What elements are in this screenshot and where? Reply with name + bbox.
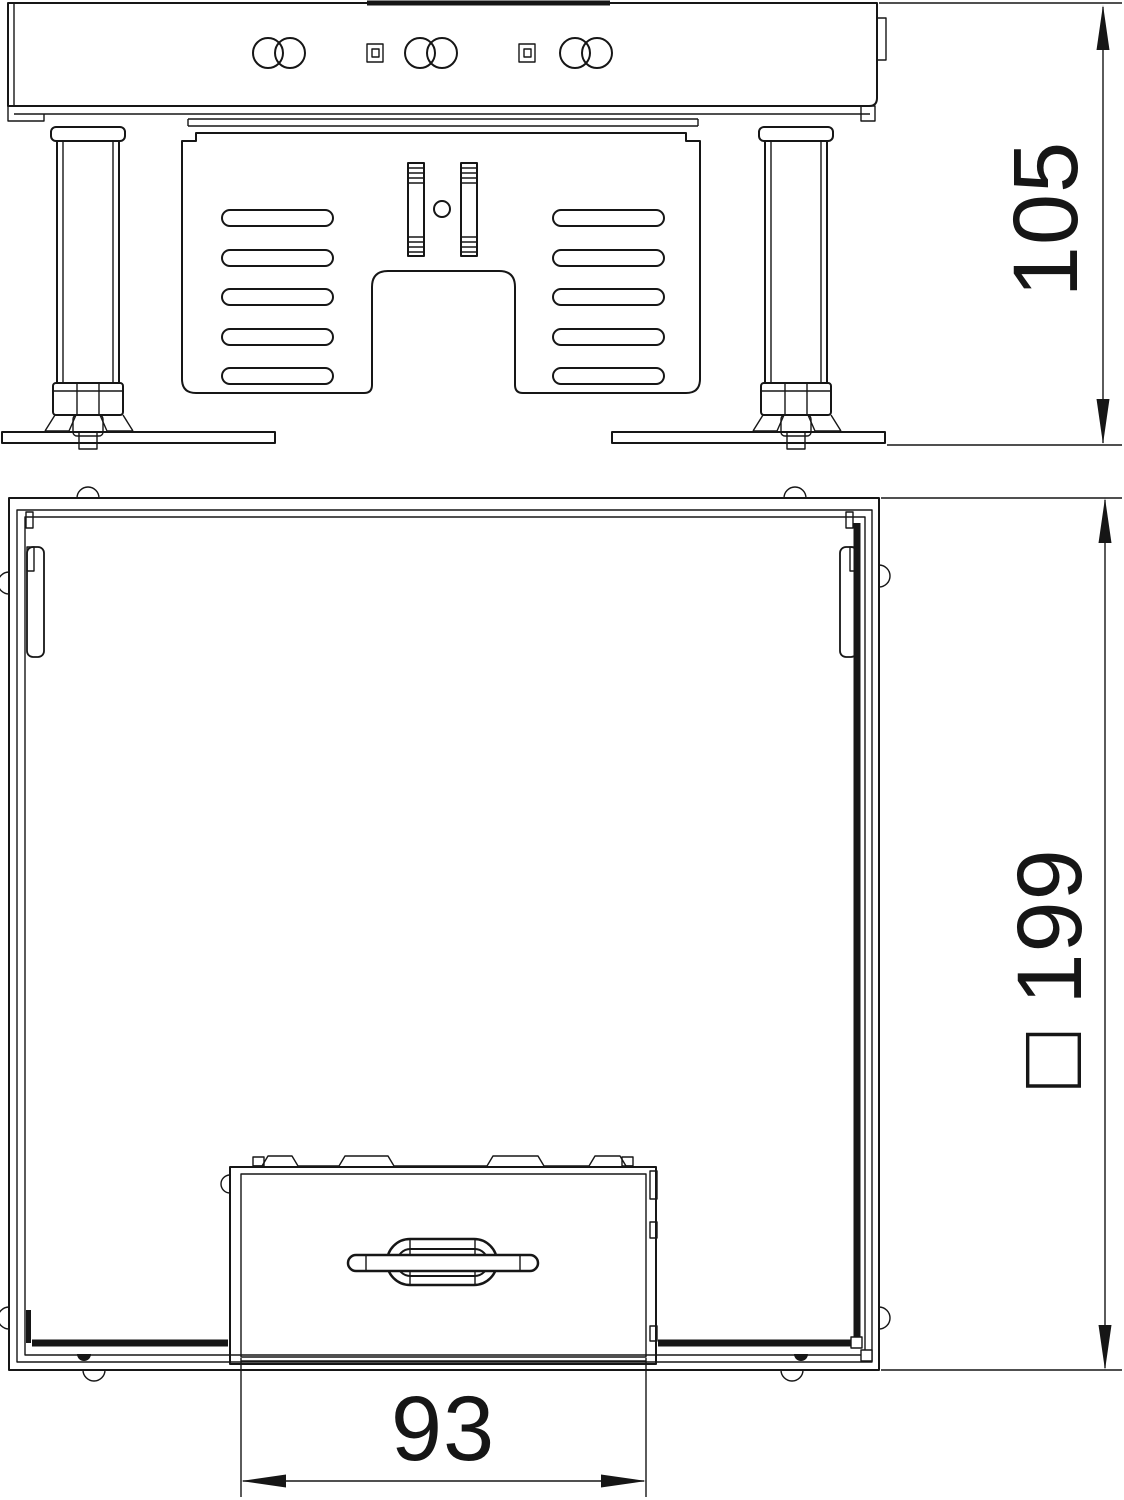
knockout-circle: [427, 38, 457, 68]
vent-slot: [222, 250, 333, 266]
bump-left-upper: [0, 572, 9, 594]
bump-right-upper: [879, 565, 890, 587]
leg-tube: [765, 141, 827, 383]
bump-right-lower: [879, 1307, 890, 1329]
arrow-left-icon: [241, 1475, 286, 1488]
bump-bottom-left: [83, 1370, 105, 1381]
leg-foot-plate: [2, 432, 275, 443]
slotted-support-plate: [182, 133, 700, 393]
dimension-199: □ 199: [881, 498, 1122, 1370]
vent-slot: [553, 250, 664, 266]
bump-top-left: [77, 487, 99, 498]
side-elevation-view: 105: [2, 3, 1122, 449]
leg-nut: [761, 383, 831, 415]
lid-corner-notch: [851, 1337, 862, 1348]
technical-drawing-canvas: 105: [0, 0, 1124, 1500]
ribbed-bar-hatch: [461, 168, 477, 252]
dimension-label-199: □ 199: [999, 848, 1101, 1088]
cassette-flange: [253, 1156, 633, 1166]
knockout-square: [519, 44, 535, 62]
vent-slot: [222, 368, 333, 384]
dimension-93: 93: [241, 1358, 646, 1497]
vent-slot: [553, 289, 664, 305]
knockout-square: [367, 44, 383, 62]
arrow-up-icon: [1099, 498, 1112, 543]
arrow-down-icon: [1099, 1325, 1112, 1370]
flange-lines: [188, 119, 698, 126]
knockout-circle: [275, 38, 305, 68]
knockout-circle: [582, 38, 612, 68]
knockout-square-inner: [372, 49, 379, 57]
bump-bottom-right: [781, 1370, 803, 1381]
adjustment-bracket: [408, 163, 477, 256]
vent-slots-right: [553, 210, 664, 384]
cover-plate-side: [8, 3, 886, 121]
frame-mid: [17, 510, 872, 1362]
arrow-up-icon: [1097, 5, 1110, 50]
knockout-squares: [367, 44, 535, 62]
leg-cap: [759, 127, 833, 141]
bump-left-lower: [0, 1307, 9, 1329]
cassette-unit: [221, 1156, 657, 1364]
frame-ledge: [25, 517, 865, 1355]
vent-slot: [222, 210, 333, 226]
vent-slot: [553, 368, 664, 384]
lid: [29, 523, 873, 1361]
leg-nut-facets: [53, 383, 123, 415]
cover-plate-right-tab: [877, 18, 886, 60]
vent-slots-left: [222, 210, 333, 384]
leg-stud: [787, 432, 805, 449]
corner-clip: [26, 512, 33, 528]
cassette-handle: [348, 1239, 538, 1285]
plan-view: □ 199 93: [0, 487, 1122, 1497]
vent-slot: [222, 329, 333, 345]
technical-drawing-page: 105: [0, 0, 1124, 1500]
leg-nut-facets: [761, 383, 831, 415]
handle-grip-bar: [348, 1255, 538, 1271]
screw-head-right: [794, 1354, 808, 1361]
leg-stud: [79, 432, 97, 449]
support-plate-outline: [182, 133, 700, 393]
vent-slot: [222, 289, 333, 305]
leg-nut: [53, 383, 123, 415]
corner-clip: [846, 512, 853, 528]
latch-left: [27, 547, 44, 657]
knockout-circles: [253, 38, 612, 68]
lid-corner-notch: [861, 1350, 872, 1361]
knockout-square-inner: [524, 49, 531, 57]
dimension-105: 105: [879, 3, 1122, 445]
dimension-label-105: 105: [995, 141, 1097, 298]
leg-washer-wings: [753, 415, 841, 431]
arrow-right-icon: [601, 1475, 646, 1488]
arrow-down-icon: [1097, 399, 1110, 444]
edge-bumps: [0, 487, 890, 1381]
leg-washer-wings: [45, 415, 133, 431]
leg-tube: [57, 141, 119, 383]
bump-top-right: [784, 487, 806, 498]
cover-plate-outline: [8, 3, 877, 106]
screw-head-left: [77, 1354, 91, 1361]
vent-slot: [553, 329, 664, 345]
leg-foot-plate: [612, 432, 885, 443]
center-hole: [434, 201, 450, 217]
mounting-flange: [188, 119, 698, 126]
vent-slot: [553, 210, 664, 226]
cassette-left-bump: [221, 1175, 230, 1193]
latches: [26, 512, 857, 657]
dimension-label-93: 93: [391, 1378, 495, 1480]
leg-cap: [51, 127, 125, 141]
ribbed-bar-hatch: [408, 168, 424, 252]
